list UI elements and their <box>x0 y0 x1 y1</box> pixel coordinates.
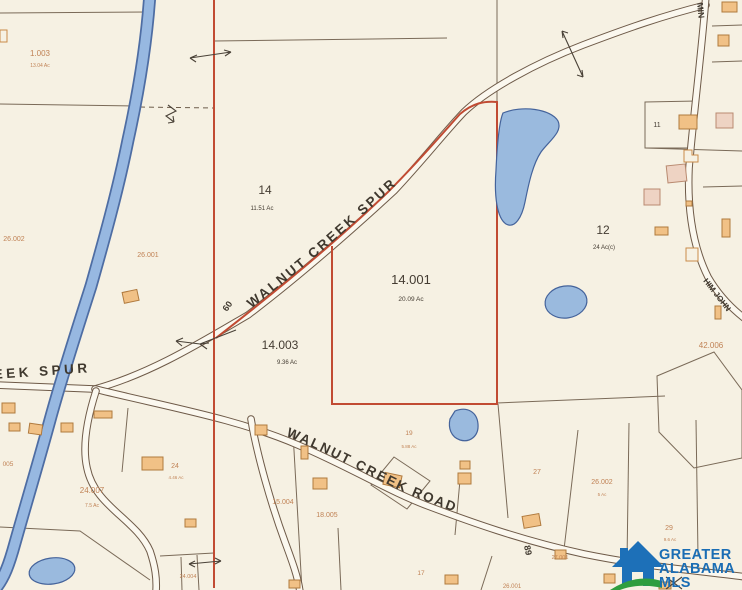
parcel-label: 19 <box>405 430 413 437</box>
road-label-min: MIN <box>695 2 707 19</box>
parcel-label: 14.003 <box>262 338 299 352</box>
parcel-acreage: 7.5 Ac <box>85 503 99 509</box>
map-canvas: WALNUT CREEK SPUR WALNUT CREEK ROAD EEK … <box>0 0 742 590</box>
parcel-label: 26.001 <box>137 252 159 259</box>
parcel-label: 26.002 <box>3 236 25 243</box>
parcel-label: 27.001 <box>552 555 569 561</box>
parcel-acreage: 9.36 Ac <box>277 360 297 366</box>
parcel-label: 29 <box>665 525 673 532</box>
parcel-label: 24.007 <box>80 486 105 495</box>
parcel-acreage-14001: 20.09 Ac <box>398 296 424 303</box>
parcel-label: 42.006 <box>699 341 724 350</box>
parcel-label: 15.004 <box>272 499 294 506</box>
parcel-label: 12 <box>596 223 610 237</box>
parcel-acreage: 11.51 Ac <box>251 206 274 212</box>
parcel-acreage: 4.46 Ac <box>168 475 184 480</box>
parcel-label: 17 <box>417 570 425 577</box>
parcel-label: 11 <box>653 122 660 129</box>
road-label-89: 89 <box>522 544 534 556</box>
parcel-acreage: 24 Ac(c) <box>593 245 615 251</box>
parcel-label: 26.002 <box>591 479 613 486</box>
parcel-label: 27 <box>533 469 541 476</box>
map-background <box>0 0 742 590</box>
parcel-label: 1.003 <box>30 49 51 58</box>
parcel-acreage: 5 Ac <box>598 492 608 497</box>
parcel-label: 26.001 <box>503 584 522 590</box>
pond-small <box>449 409 478 440</box>
parcel-acreage: 13.04 Ac <box>30 63 50 69</box>
parcel-acreage: 9.6 Ac <box>664 537 677 542</box>
parcel-label: 24 <box>171 463 179 470</box>
parcel-map: WALNUT CREEK SPUR WALNUT CREEK ROAD EEK … <box>0 0 742 590</box>
parcel-label: 14 <box>258 183 272 197</box>
mls-logo-line3: MLS <box>659 575 691 590</box>
parcel-label: 24.004 <box>180 574 197 580</box>
parcel-label: 005 <box>3 461 14 468</box>
parcel-acreage: 5.88 Ac <box>401 444 417 449</box>
parcel-label: 18.005 <box>316 512 338 519</box>
parcel-label-14001: 14.001 <box>391 272 431 287</box>
